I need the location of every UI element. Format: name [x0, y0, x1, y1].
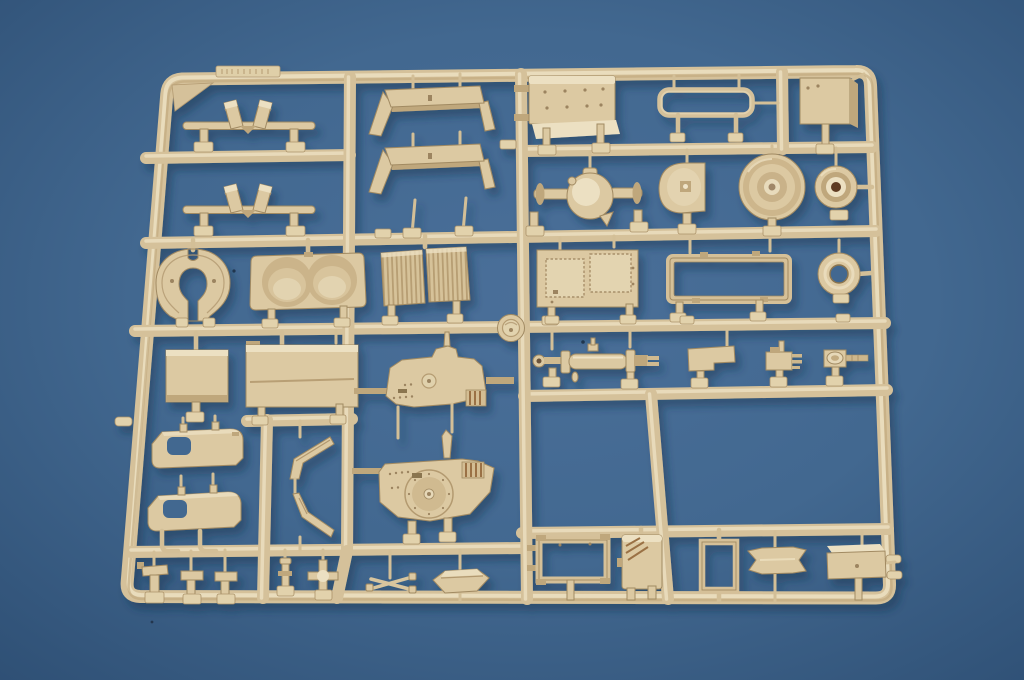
injection-stub-left — [115, 417, 132, 426]
sprue-photo — [0, 0, 1024, 680]
photo-stage — [0, 0, 1024, 680]
embossed-label-strip — [216, 66, 280, 77]
stowage-bin-tall — [617, 528, 662, 600]
runner-medallion — [498, 315, 525, 342]
